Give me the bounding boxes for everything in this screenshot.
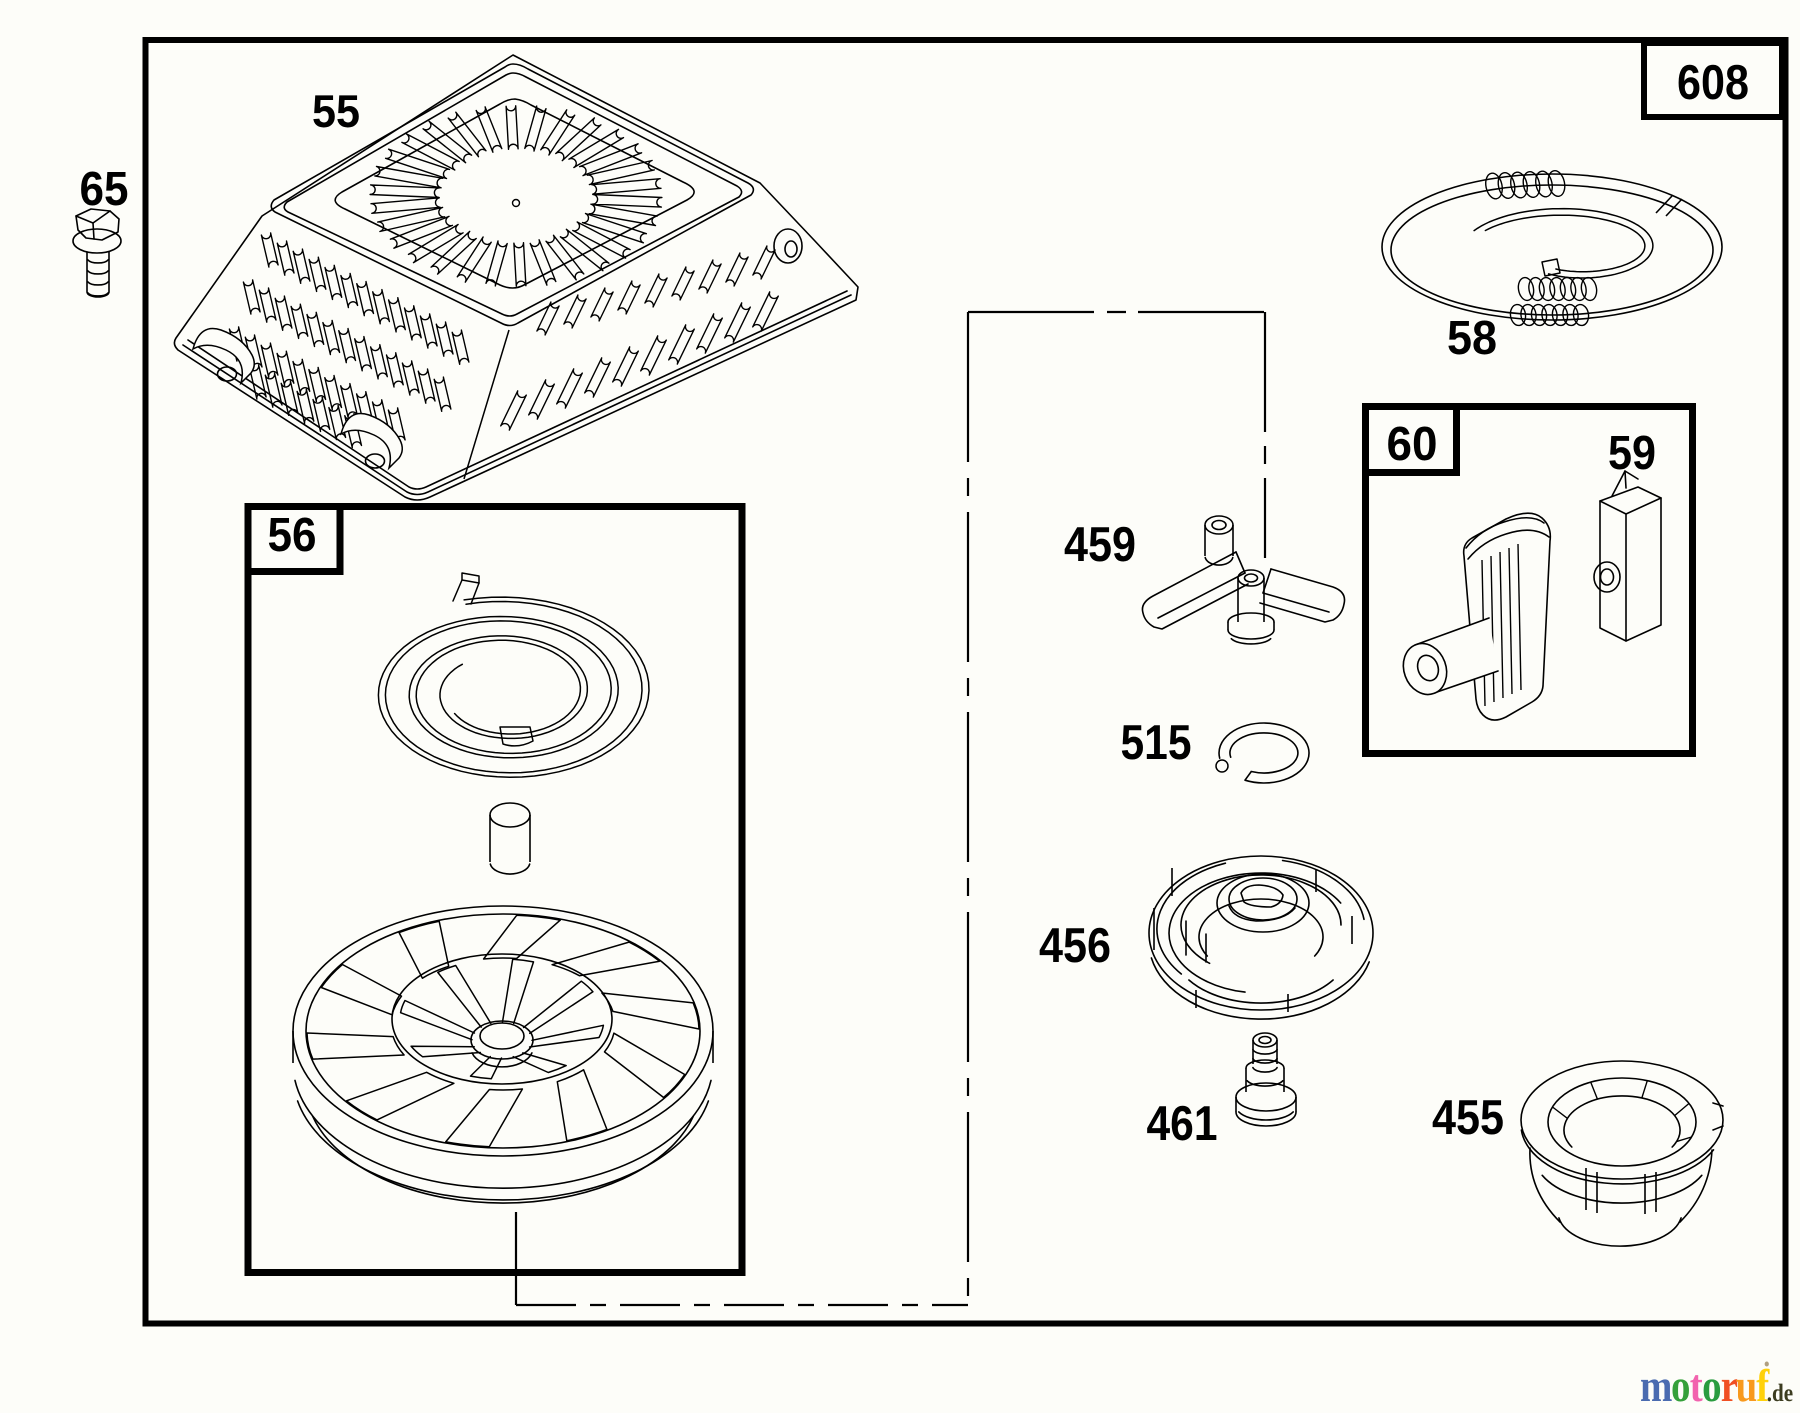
svg-text:60: 60 bbox=[1387, 418, 1438, 471]
svg-text:65: 65 bbox=[80, 163, 129, 216]
svg-text:515: 515 bbox=[1121, 716, 1192, 770]
svg-text:m: m bbox=[1640, 1360, 1672, 1411]
svg-text:.de: .de bbox=[1767, 1380, 1793, 1407]
svg-text:58: 58 bbox=[1447, 312, 1497, 365]
svg-text:459: 459 bbox=[1064, 518, 1136, 572]
svg-text:455: 455 bbox=[1432, 1091, 1504, 1145]
svg-text:o: o bbox=[1671, 1360, 1690, 1411]
svg-text:u: u bbox=[1736, 1360, 1758, 1411]
svg-text:456: 456 bbox=[1039, 919, 1111, 973]
svg-text:56: 56 bbox=[268, 509, 317, 562]
svg-text:608: 608 bbox=[1677, 56, 1749, 110]
svg-text:461: 461 bbox=[1147, 1097, 1218, 1151]
svg-text:55: 55 bbox=[312, 85, 360, 137]
svg-text:59: 59 bbox=[1608, 427, 1656, 480]
svg-text:t: t bbox=[1690, 1360, 1704, 1411]
svg-text:o: o bbox=[1702, 1360, 1721, 1411]
